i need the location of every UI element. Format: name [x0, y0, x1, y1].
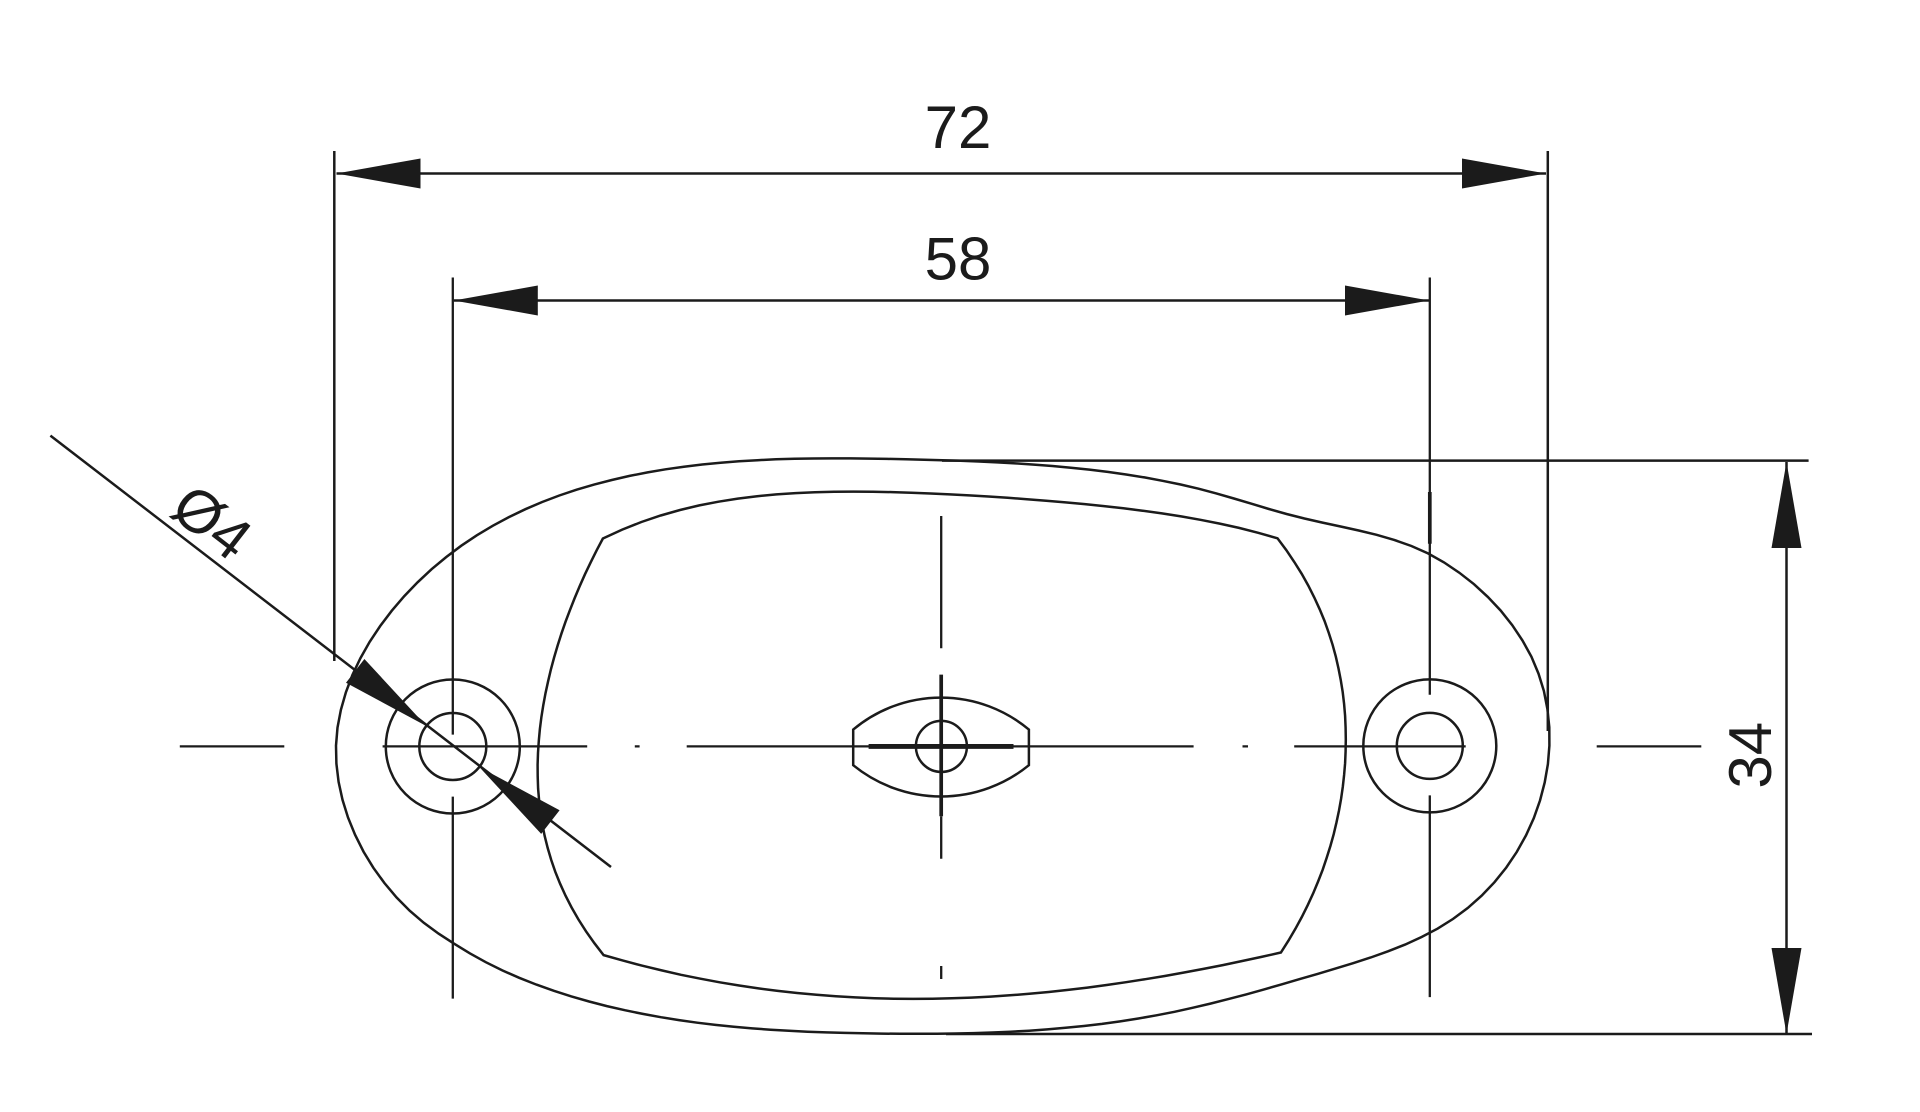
- svg-text:58: 58: [925, 226, 992, 293]
- svg-text:34: 34: [1717, 722, 1784, 789]
- svg-text:Ø4: Ø4: [160, 471, 264, 573]
- svg-text:72: 72: [925, 94, 992, 161]
